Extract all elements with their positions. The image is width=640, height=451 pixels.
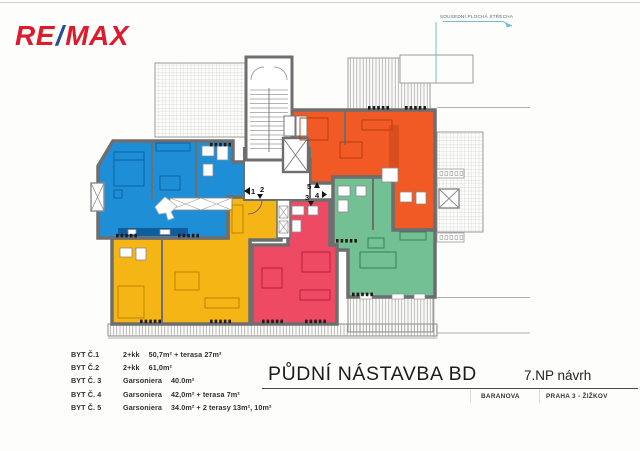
title-block-divider <box>539 390 540 403</box>
entrance-5: 5 <box>307 182 311 191</box>
entrance-1: 1 <box>251 187 255 196</box>
elevator-shaft <box>283 116 308 172</box>
unit-area: 42,0m² + terasa 7m² <box>171 390 240 399</box>
legend-row-5: BYT Č. 5 Garsoniera 34.0m² + 2 terasy 13… <box>71 401 271 414</box>
unit-area: 34.0m² + 2 terasy 13m², 10m² <box>171 403 272 412</box>
district-label: PRAHA 3 - ŽIŽKOV <box>546 393 608 400</box>
legend-row-1: BYT Č.1 2+kk 50,7m² + terasa 27m² <box>71 348 271 361</box>
unit-area: 40.0m² <box>171 376 194 385</box>
unit-label: BYT Č. 3 <box>71 376 123 385</box>
unit-area: 61,0m² <box>149 363 172 372</box>
terrace-green-unit <box>348 297 433 332</box>
skylight-bar <box>170 198 232 210</box>
roof-hatch-top-right <box>348 55 473 110</box>
unit-legend: BYT Č.1 2+kk 50,7m² + terasa 27m² BYT Č.… <box>71 348 271 414</box>
drawing-variant: 7.NP návrh <box>524 368 591 383</box>
unit-type: 2+kk <box>123 350 140 359</box>
unit-type: 2+kk <box>123 363 140 372</box>
street-label: BARANOVA <box>481 393 520 400</box>
title-block-rule <box>262 388 638 389</box>
legend-row-2: BYT Č.2 2+kk 61,0m² <box>71 361 271 374</box>
unit-label: BYT Č.1 <box>71 350 123 359</box>
unit-label: BYT Č. 4 <box>71 390 123 399</box>
title-block-divider <box>470 390 471 403</box>
drawing-title: PŮDNÍ NÁSTAVBA BD <box>268 363 477 386</box>
legend-row-4: BYT Č. 4 Garsoniera 42,0m² + terasa 7m² <box>71 388 271 401</box>
unit-label: BYT Č.2 <box>71 363 123 372</box>
unit-type: Garsoniera <box>123 390 162 399</box>
unit-type: Garsoniera <box>123 376 162 385</box>
scanned-floorplan-page: RE/MAX SOUSEDNÍ PLOCHÁ STŘECHA <box>0 0 640 451</box>
unit-area: 50,7m² + terasa 27m² <box>149 350 222 359</box>
unit-label: BYT Č. 5 <box>71 403 123 412</box>
legend-row-3: BYT Č. 3 Garsoniera 40.0m² <box>71 374 271 387</box>
unit-type: Garsoniera <box>123 403 162 412</box>
roof-hatch-top-left <box>155 63 245 137</box>
entrance-3: 3 <box>305 193 309 202</box>
entrance-2: 2 <box>260 185 264 194</box>
roof-hatch-right <box>437 132 483 232</box>
